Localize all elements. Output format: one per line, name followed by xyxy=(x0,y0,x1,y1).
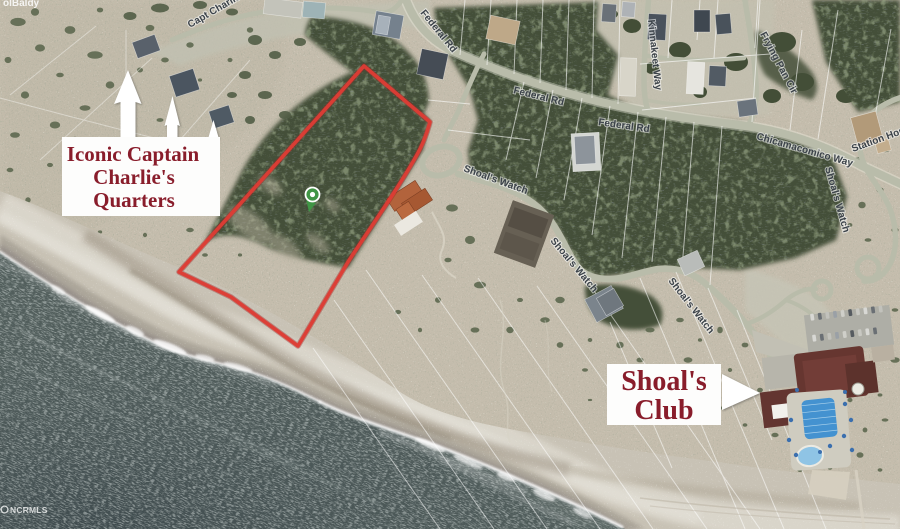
svg-text:Charlie's: Charlie's xyxy=(93,165,175,189)
svg-text:olBaldy: olBaldy xyxy=(3,0,40,9)
svg-text:Quarters: Quarters xyxy=(93,188,175,212)
svg-text:Iconic Captain: Iconic Captain xyxy=(67,142,200,166)
svg-text:Shoal's: Shoal's xyxy=(621,366,707,397)
svg-text:NCRMLS: NCRMLS xyxy=(10,505,48,515)
svg-text:Club: Club xyxy=(634,395,693,426)
